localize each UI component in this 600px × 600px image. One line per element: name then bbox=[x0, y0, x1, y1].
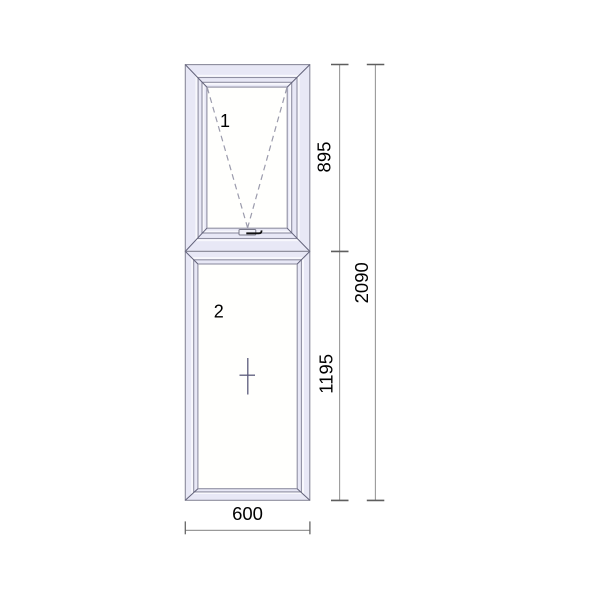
svg-text:1: 1 bbox=[220, 111, 230, 131]
svg-text:895: 895 bbox=[313, 142, 334, 173]
svg-text:2090: 2090 bbox=[351, 262, 372, 303]
svg-text:2: 2 bbox=[214, 302, 224, 322]
svg-text:1195: 1195 bbox=[315, 354, 336, 394]
svg-text:600: 600 bbox=[232, 503, 263, 524]
